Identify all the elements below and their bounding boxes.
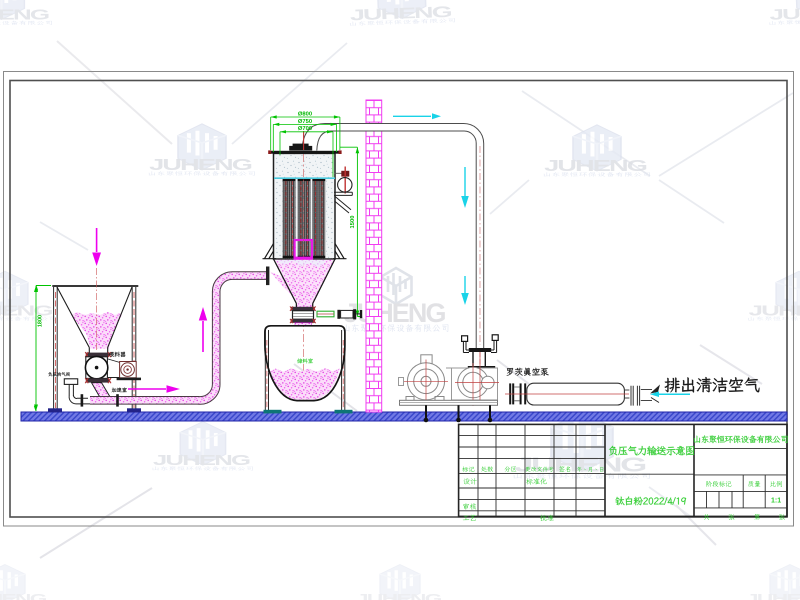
svg-text:Ø750: Ø750 (298, 119, 312, 125)
svg-text:1:1: 1:1 (771, 497, 781, 504)
svg-text:1500: 1500 (350, 216, 356, 229)
svg-text:Ø800: Ø800 (298, 111, 312, 117)
svg-text:Ø700: Ø700 (298, 126, 312, 132)
svg-text:1800: 1800 (38, 315, 44, 327)
